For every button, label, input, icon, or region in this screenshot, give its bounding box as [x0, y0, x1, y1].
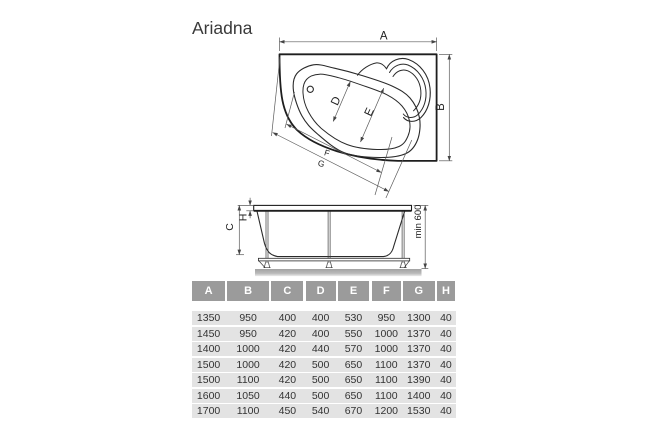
svg-text:G: G: [317, 158, 326, 170]
svg-text:C: C: [224, 223, 236, 231]
svg-text:F: F: [323, 147, 331, 158]
svg-text:A: A: [380, 31, 388, 43]
svg-text:E: E: [363, 106, 377, 118]
svg-text:min 600: min 600: [413, 205, 424, 239]
svg-text:H: H: [237, 214, 249, 222]
svg-text:D: D: [329, 95, 343, 108]
svg-text:B: B: [435, 103, 447, 111]
